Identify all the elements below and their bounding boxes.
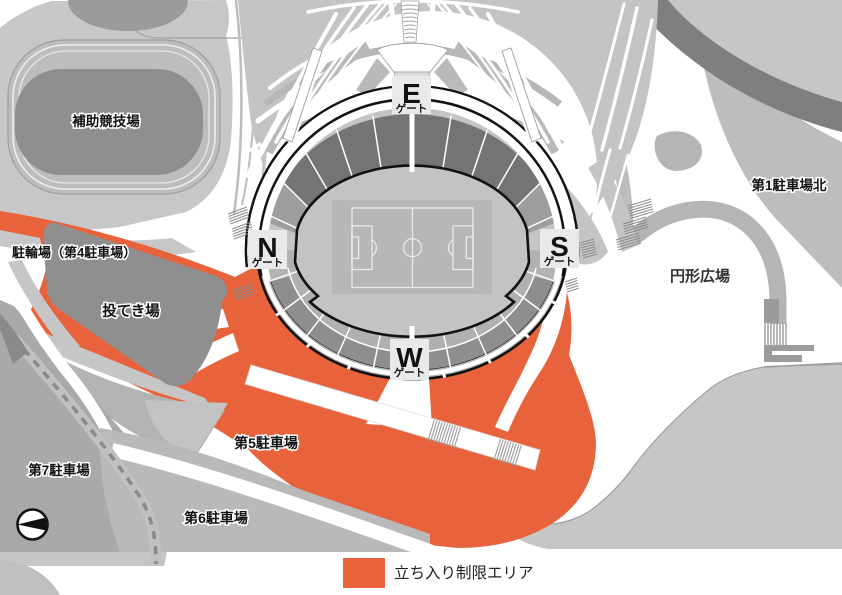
svg-text:立ち入り制限エリア: 立ち入り制限エリア [394, 564, 534, 582]
svg-text:補助競技場: 補助競技場 [71, 113, 140, 129]
svg-text:ゲート: ゲート [252, 256, 284, 269]
svg-text:ゲート: ゲート [396, 102, 428, 115]
svg-text:ゲート: ゲート [544, 255, 576, 268]
svg-text:第1駐車場北: 第1駐車場北 [751, 177, 827, 193]
svg-text:第7駐車場: 第7駐車場 [28, 462, 90, 478]
svg-text:駐輪場（第4駐車場）: 駐輪場（第4駐車場） [12, 245, 136, 260]
svg-text:ゲート: ゲート [394, 366, 426, 379]
svg-text:円形広場: 円形広場 [670, 267, 730, 285]
svg-text:第5駐車場: 第5駐車場 [234, 435, 298, 451]
svg-text:投てき場: 投てき場 [102, 303, 160, 320]
svg-text:第6駐車場: 第6駐車場 [184, 510, 248, 526]
